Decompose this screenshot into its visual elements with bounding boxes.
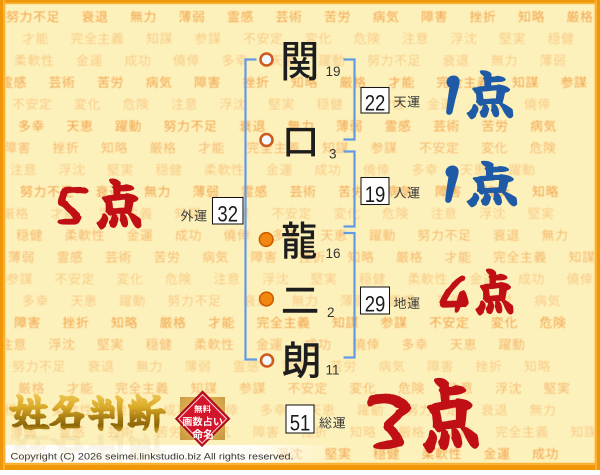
- svg-text:2: 2: [327, 305, 335, 320]
- svg-text:16: 16: [326, 246, 341, 261]
- svg-text:51: 51: [290, 410, 311, 435]
- svg-text:3: 3: [329, 147, 337, 162]
- svg-text:11: 11: [326, 363, 340, 378]
- svg-text:19: 19: [365, 182, 386, 207]
- svg-text:22: 22: [365, 90, 386, 115]
- svg-text:19: 19: [326, 64, 341, 79]
- svg-text:29: 29: [365, 291, 386, 316]
- svg-text:32: 32: [217, 201, 238, 226]
